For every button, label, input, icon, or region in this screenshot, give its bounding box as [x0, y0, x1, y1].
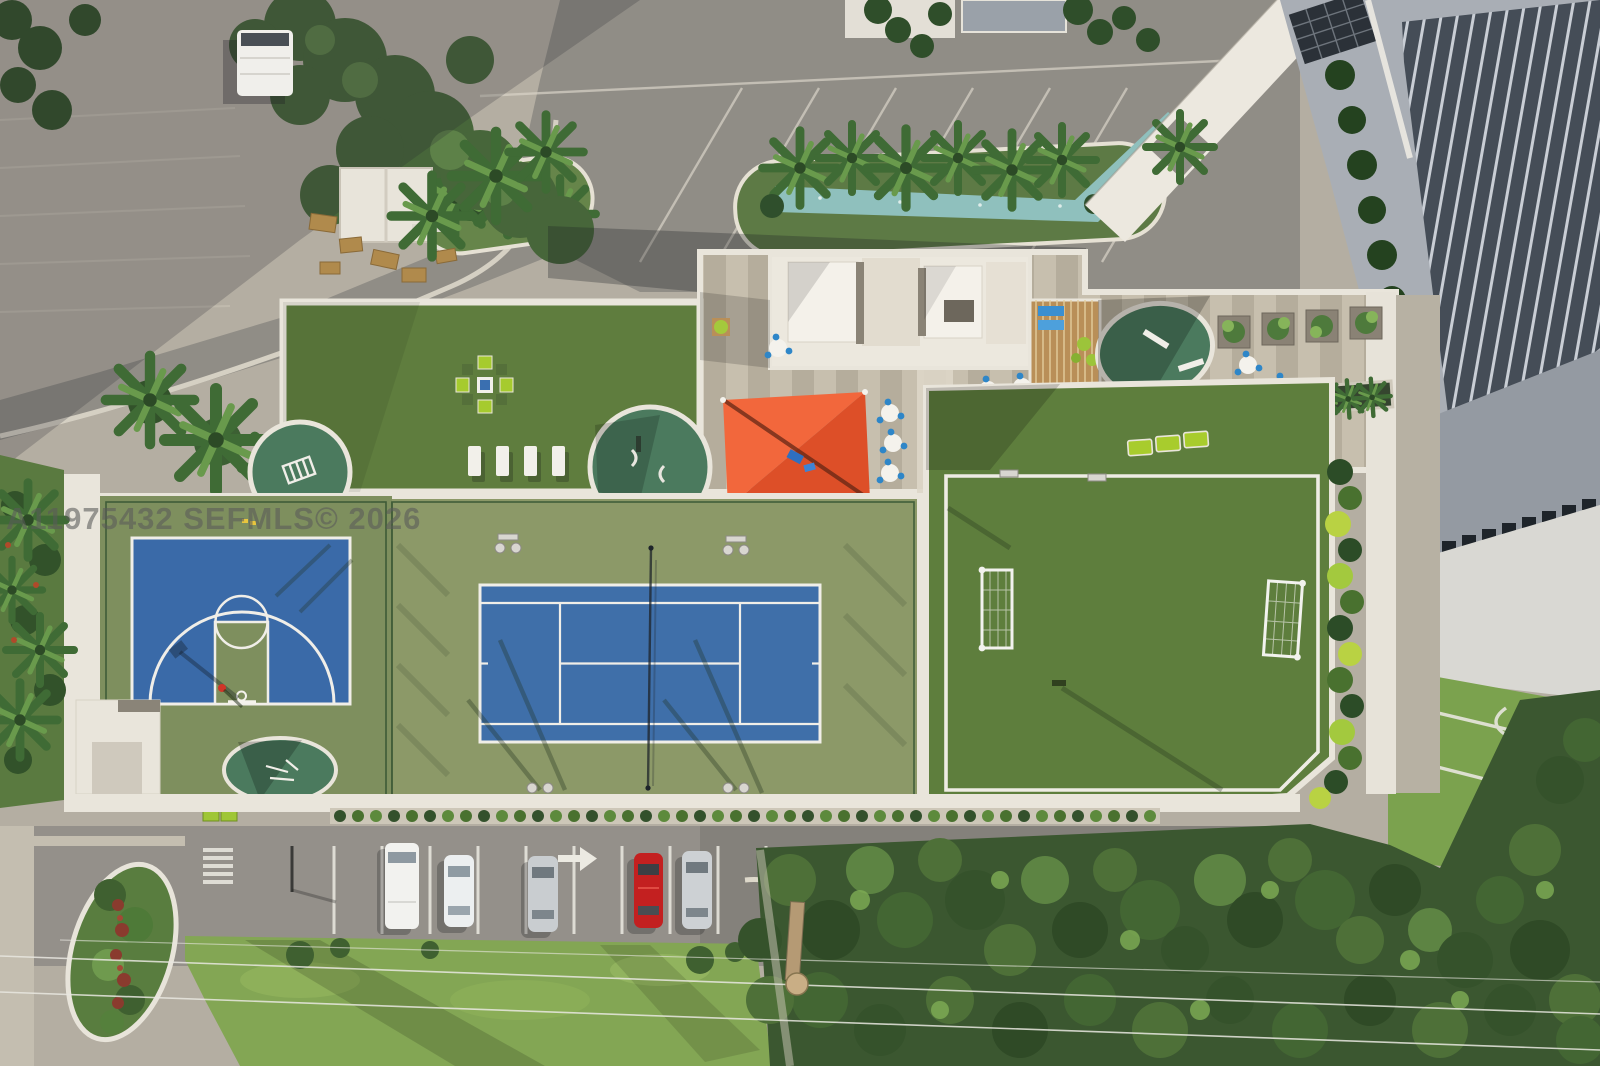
orange-shade-sail	[720, 389, 873, 511]
mls-watermark: A11975432 SEFMLS© 2026	[6, 501, 421, 536]
amenity-structures-roof	[770, 255, 1030, 368]
structure-shadow	[700, 292, 770, 368]
deck-planter-box	[712, 318, 730, 336]
east-paving	[1396, 295, 1440, 793]
east-walkway	[1366, 292, 1396, 794]
fitness-pad-south	[224, 738, 336, 802]
white-box-van	[377, 843, 419, 935]
white-sedan	[437, 855, 474, 933]
aerial-photo-canvas: A11975432 SEFMLS© 2026	[0, 0, 1600, 1066]
lime-chair-cluster	[456, 356, 513, 413]
west-sidewalk	[0, 826, 34, 1066]
basketball-half-court	[132, 538, 352, 707]
red-sedan	[627, 853, 663, 934]
wood-pergola	[1030, 300, 1100, 388]
grass-verge	[185, 936, 772, 1066]
aerial-photo: A11975432 SEFMLS© 2026	[0, 0, 1600, 1066]
white-box-truck	[223, 30, 293, 104]
pergola-lounger	[1038, 320, 1064, 330]
silver-sedan	[521, 856, 558, 938]
silver-sedan-2	[675, 851, 712, 935]
stair-structure	[76, 700, 160, 794]
pergola-lounger	[1038, 306, 1064, 316]
